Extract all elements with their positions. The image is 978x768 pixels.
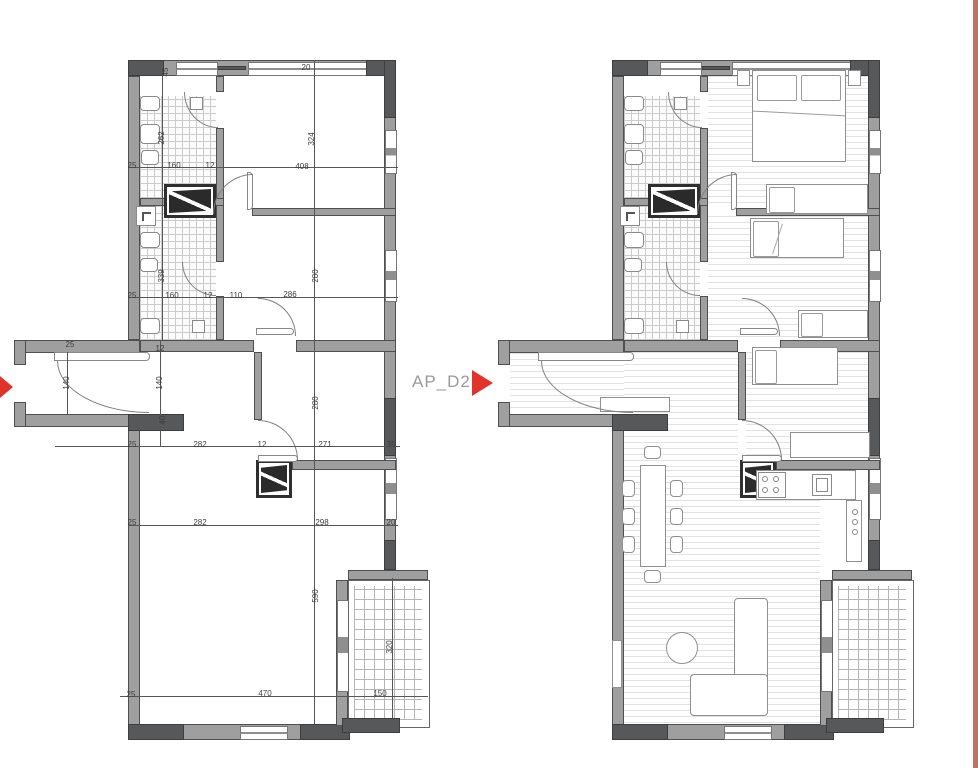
chair — [622, 536, 635, 553]
desk — [790, 432, 870, 458]
wall-block — [868, 60, 880, 118]
chair — [644, 570, 661, 583]
double-bed — [752, 70, 846, 162]
kitchen-sink — [812, 474, 832, 496]
partition — [776, 460, 880, 470]
wall-block — [868, 540, 880, 570]
dining-table — [640, 465, 666, 567]
washing-machine — [620, 206, 640, 226]
wall-gap — [702, 66, 730, 70]
balcony-floor — [838, 586, 906, 720]
corridor-wall-cap — [498, 340, 510, 365]
nightstand — [737, 70, 750, 86]
wall-cabinet — [676, 320, 689, 333]
sink — [624, 232, 644, 248]
chair — [644, 446, 661, 459]
bidet — [625, 150, 643, 165]
stove — [758, 472, 786, 498]
partition — [738, 352, 746, 420]
sofa — [690, 674, 768, 716]
chair — [622, 508, 635, 525]
partition — [700, 76, 708, 92]
window — [869, 250, 881, 302]
single-bed — [752, 347, 838, 385]
single-bed — [798, 310, 868, 338]
wall-corner-block — [612, 724, 668, 740]
single-bed — [750, 218, 844, 258]
chair — [670, 508, 683, 525]
coffee-table-round — [666, 632, 698, 664]
shaft — [648, 184, 700, 218]
window — [724, 726, 772, 740]
wall-block — [826, 718, 884, 733]
toilet — [624, 318, 644, 334]
chair — [670, 480, 683, 497]
floor-plan-furnished — [0, 0, 978, 768]
bidet — [624, 258, 642, 272]
entry-door-leaf — [538, 352, 634, 361]
balcony-wall — [832, 570, 912, 580]
wall-cabinet — [674, 97, 687, 110]
wall-corner-block — [612, 60, 648, 76]
window — [660, 62, 702, 76]
wall-block — [612, 414, 668, 431]
single-bed — [766, 184, 868, 214]
chair — [622, 480, 635, 497]
kitchen-counter — [846, 500, 862, 562]
tv-sideboard — [612, 640, 622, 688]
window — [869, 130, 881, 174]
toilet — [624, 96, 644, 111]
sink — [624, 124, 644, 144]
nightstand — [848, 70, 861, 86]
partition — [700, 296, 708, 340]
corridor-wall-cap — [498, 402, 510, 427]
corridor-wall — [498, 414, 624, 427]
chair — [670, 536, 683, 553]
partition — [624, 340, 738, 352]
